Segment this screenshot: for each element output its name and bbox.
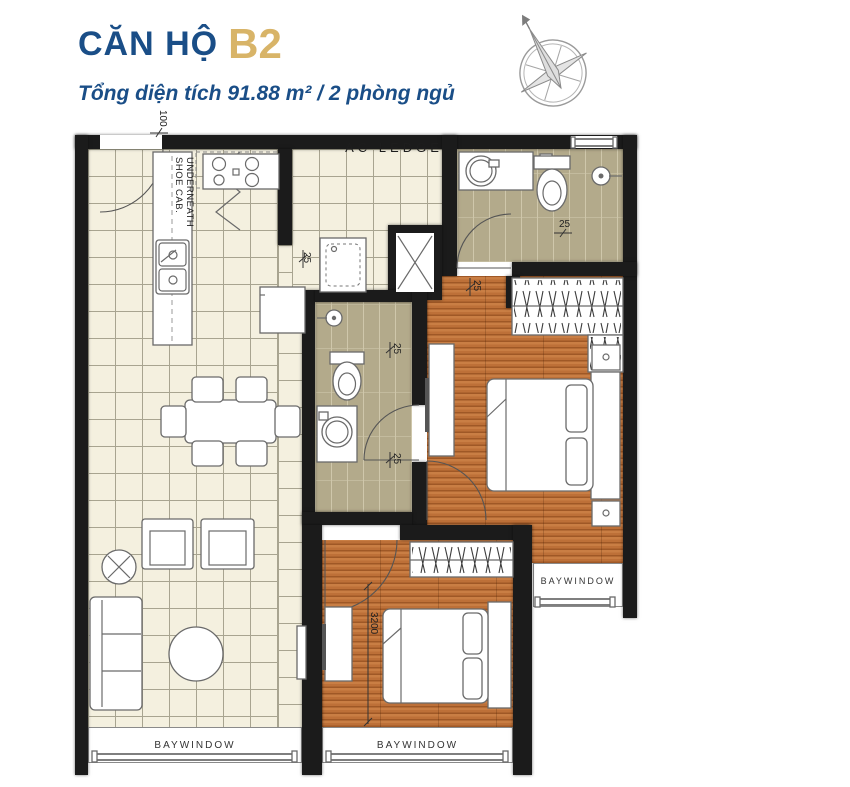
room-living-strip xyxy=(278,245,302,727)
floor-plan-page: CĂN HỘB2 Tổng diện tích 91.88 m² / 2 phò… xyxy=(0,0,850,787)
wall-bath2-bottom xyxy=(302,512,412,525)
shaft-box xyxy=(396,233,434,292)
apartment-title: CĂN HỘ xyxy=(78,25,218,64)
wall-entry-acledge xyxy=(278,149,292,245)
dim-bedroom2-3200: 3200 xyxy=(368,612,379,634)
baywindow-middle-label: BAYWINDOW xyxy=(322,740,513,751)
dim-kitchen-25: 25 xyxy=(301,252,312,263)
wall-right xyxy=(623,135,637,618)
shoe-cab-label: UNDERNEATH SHOE CAB. xyxy=(173,157,195,227)
wall-bath2-left xyxy=(302,290,315,525)
dim-master-bath-25: 25 xyxy=(559,219,570,230)
shoe-cab-label-line-shoecab: SHOE CAB. xyxy=(173,157,184,227)
bath-window-opening xyxy=(571,136,617,148)
room-master-bathroom xyxy=(457,149,623,262)
compass-rose-icon xyxy=(489,0,603,120)
room-bathroom-2 xyxy=(315,302,412,525)
dim-entry-100: 100 xyxy=(157,110,168,127)
baywindow-right-label: BAYWINDOW xyxy=(533,576,623,586)
dim-bath2-upper-25: 25 xyxy=(391,343,402,354)
wall-living-bedroom2 xyxy=(302,525,322,775)
wall-left xyxy=(75,135,88,775)
dim-hall-pocket-25: 25 xyxy=(471,280,482,291)
apartment-subtitle: Tổng diện tích 91.88 m² / 2 phòng ngủ xyxy=(78,82,455,106)
apartment-unit-code: B2 xyxy=(228,20,282,68)
wall-wardrobe-stub xyxy=(506,276,520,308)
wall-bedroom2-top xyxy=(400,525,530,540)
page-title: CĂN HỘB2 xyxy=(78,20,282,68)
wall-bath2-right-upper xyxy=(412,276,427,405)
room-master-bedroom xyxy=(427,276,623,563)
wall-bath-bedroom xyxy=(512,262,637,276)
shoe-cab-label-line-underneath: UNDERNEATH xyxy=(184,157,195,227)
wall-acledge-bath xyxy=(442,135,457,276)
ac-ledge-label: AC LEDGE xyxy=(338,140,450,155)
dim-bath2-lower-25: 25 xyxy=(391,453,402,464)
wall-bedroom2-right xyxy=(513,525,532,775)
room-living-kitchen xyxy=(88,149,278,727)
baywindow-left-label: BAYWINDOW xyxy=(88,740,302,751)
wall-bath2-right-lower xyxy=(412,462,427,525)
room-bedroom-2 xyxy=(322,540,513,727)
entry-door-opening xyxy=(100,135,162,149)
